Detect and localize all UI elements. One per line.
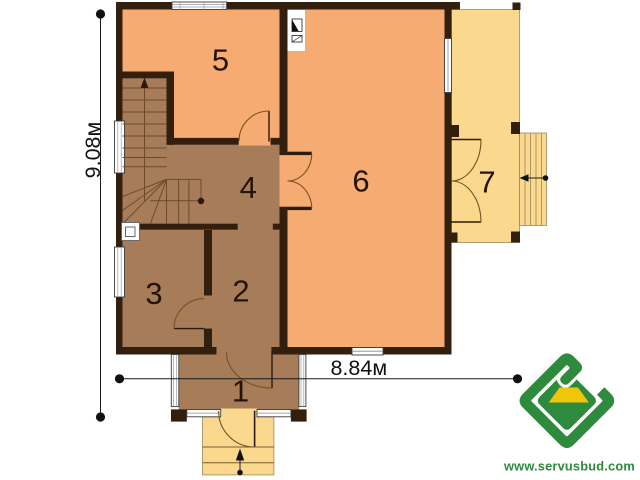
- svg-text:6: 6: [352, 164, 369, 199]
- svg-text:2: 2: [232, 274, 249, 309]
- svg-text:4: 4: [240, 170, 257, 205]
- svg-text:3: 3: [145, 276, 162, 311]
- svg-text:8.84м: 8.84м: [330, 356, 387, 380]
- svg-text:9.08м: 9.08м: [81, 122, 105, 179]
- svg-text:7: 7: [478, 165, 495, 200]
- svg-text:5: 5: [212, 43, 229, 78]
- svg-text:www.servusbud.com: www.servusbud.com: [503, 459, 635, 474]
